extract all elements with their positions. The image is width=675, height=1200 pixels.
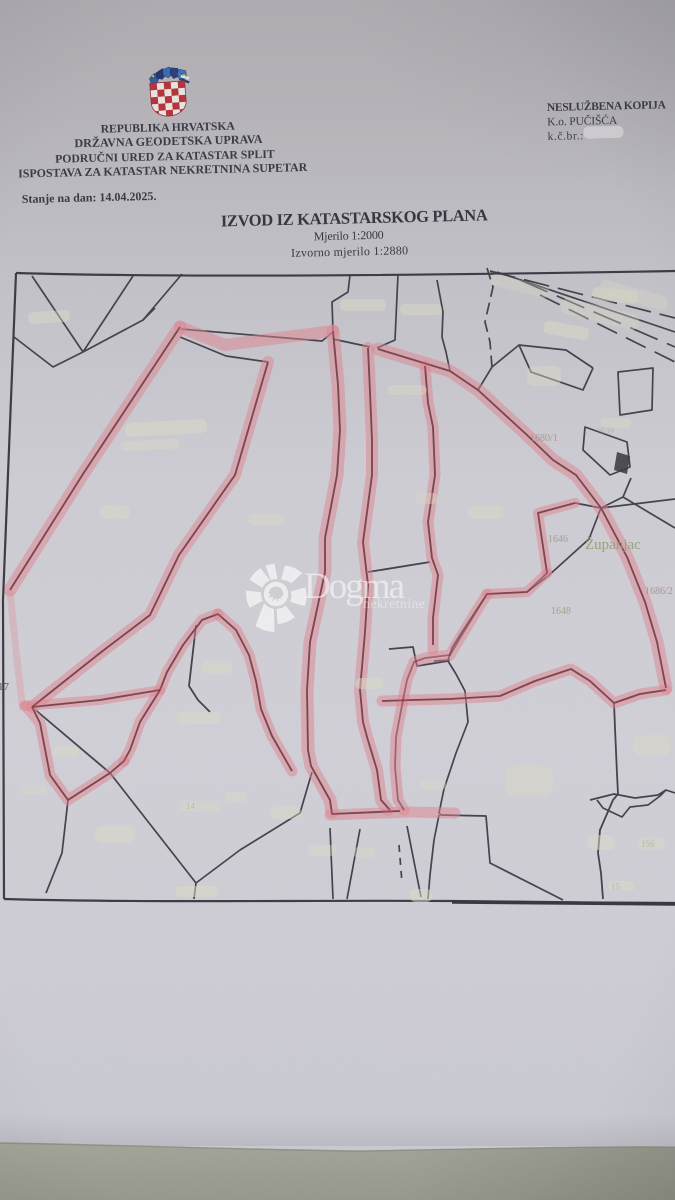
svg-text:1686/2: 1686/2 (645, 586, 673, 597)
svg-text:15: 15 (611, 882, 621, 892)
svg-text:Županjac: Županjac (585, 536, 641, 553)
svg-text:17: 17 (0, 681, 10, 693)
svg-text:1639: 1639 (596, 426, 615, 436)
svg-text:156: 156 (641, 839, 655, 849)
svg-text:1680/1: 1680/1 (530, 433, 558, 444)
svg-text:1646: 1646 (548, 534, 568, 545)
svg-text:1648: 1648 (551, 606, 571, 617)
svg-text:k.č.br.:: k.č.br.: (547, 130, 583, 143)
svg-text:Mjerilo 1:2000: Mjerilo 1:2000 (314, 228, 384, 244)
svg-text:nekretnine: nekretnine (363, 597, 425, 612)
svg-text:14: 14 (186, 801, 196, 811)
svg-text:Izvorno mjerilo 1:2880: Izvorno mjerilo 1:2880 (291, 243, 408, 260)
